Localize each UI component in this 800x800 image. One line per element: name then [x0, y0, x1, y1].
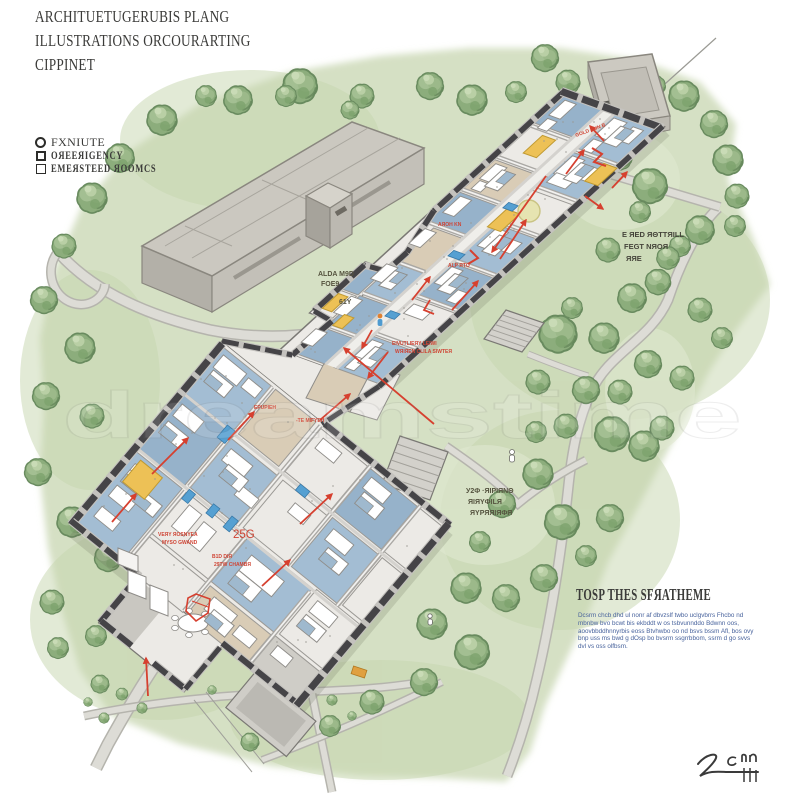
svg-text:25G: 25G: [233, 529, 255, 541]
svg-text:29TW CHAMBЯ: 29TW CHAMBЯ: [214, 562, 251, 568]
svg-text:VEЯY ЯOSNYEA: VEЯY ЯOSNYEA: [158, 532, 198, 538]
svg-text:У2Ф ·ЯIPIЯNΘ: У2Ф ·ЯIPIЯNΘ: [466, 488, 514, 495]
svg-text:B1D DIЯ: B1D DIЯ: [212, 554, 232, 560]
svg-text:ЯЯE: ЯЯE: [626, 254, 642, 263]
svg-text:ЯYPЯЯIЯФЯ: ЯYPЯЯIЯФЯ: [470, 510, 512, 517]
svg-text:ALDA M9D: ALDA M9D: [318, 271, 354, 278]
svg-text:EIVUTLIEЯY LEIWI: EIVUTLIEЯY LEIWI: [392, 341, 437, 347]
svg-text:FOE9: FOE9: [321, 281, 339, 288]
svg-text:WЯIЯEN CLILA SIWTEЯ: WЯIЯEN CLILA SIWTEЯ: [395, 349, 452, 355]
svg-text:FEGT NЯOЯ: FEGT NЯOЯ: [624, 242, 668, 251]
svg-text:ЯIЯYФILЯ: ЯIЯYФILЯ: [468, 499, 502, 506]
svg-text:ALP ЯTO: ALP ЯTO: [448, 263, 470, 269]
svg-text:AЯOH KN: AЯOH KN: [438, 222, 462, 228]
svg-text:61Υ: 61Υ: [339, 299, 352, 306]
svg-text:Ε ЯED ЯΘTTЯILL: Ε ЯED ЯΘTTЯILL: [622, 230, 684, 239]
svg-text:dreamstime: dreamstime: [62, 378, 742, 452]
svg-text:MYSO GWAND: MYSO GWAND: [162, 540, 198, 546]
